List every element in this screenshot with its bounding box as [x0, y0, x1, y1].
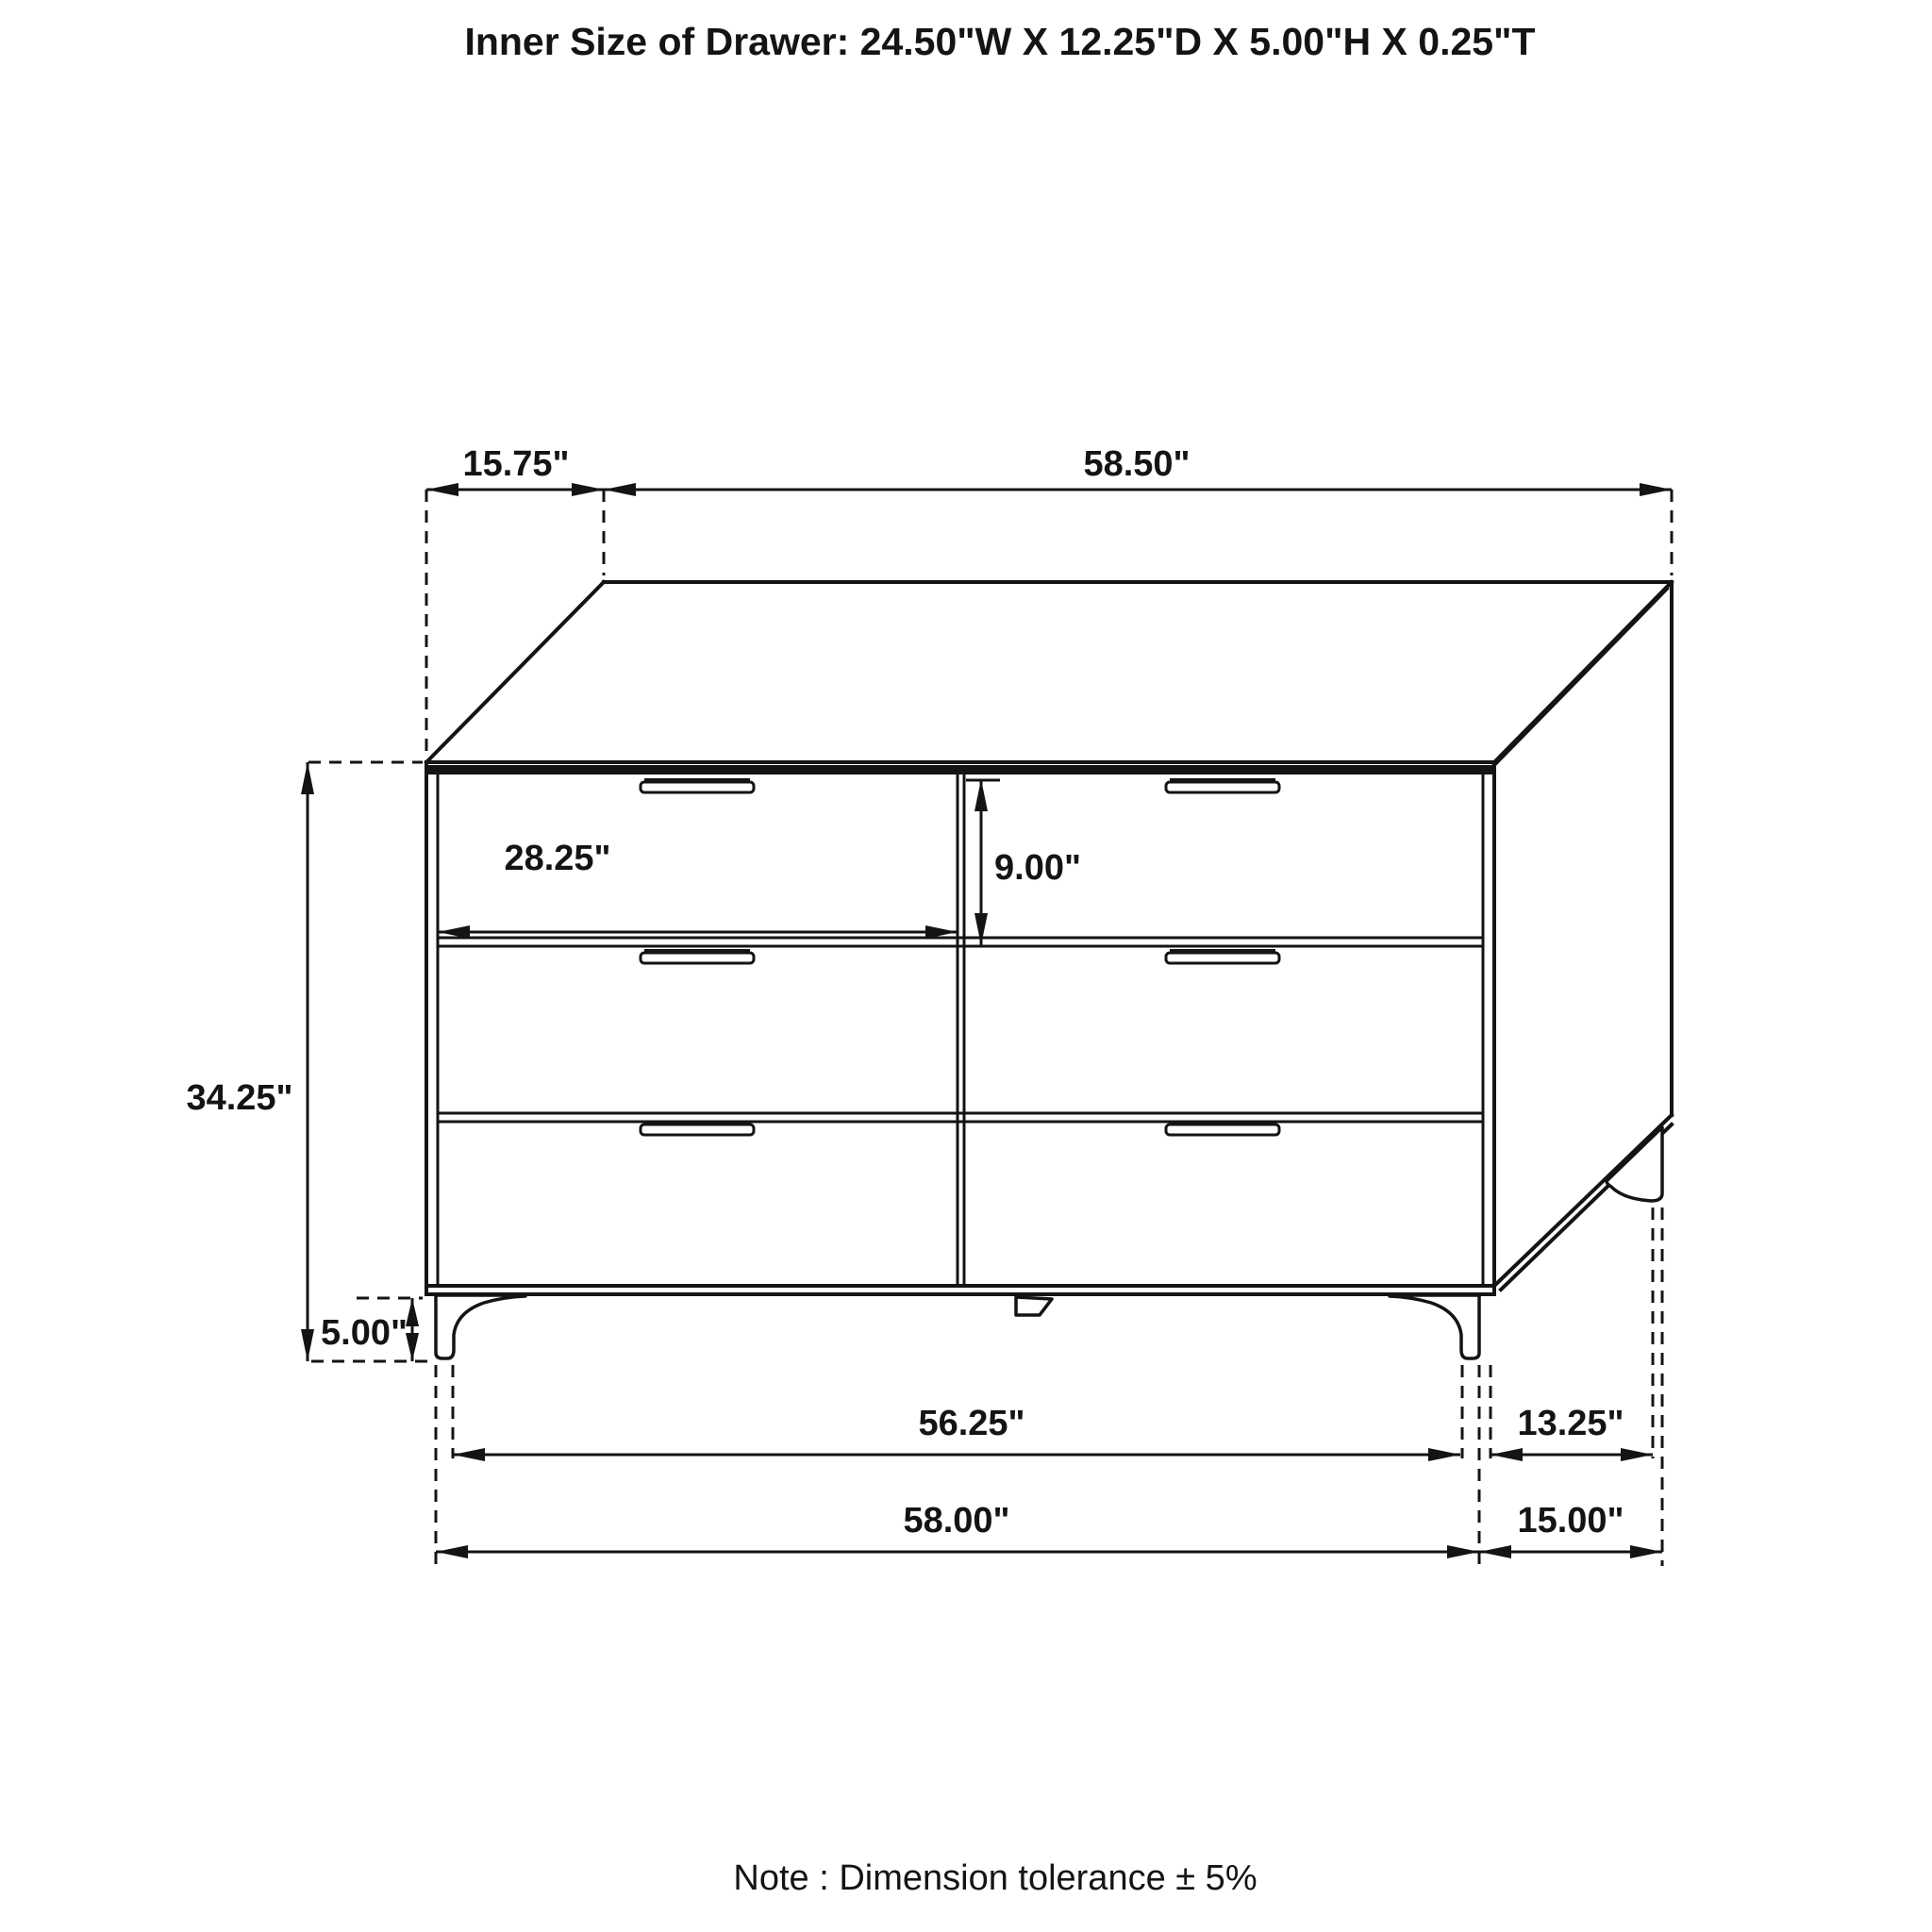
drawer-handle-icon — [641, 1121, 754, 1135]
drawer-handles — [641, 778, 1279, 1135]
left-front-foot — [436, 1295, 525, 1358]
page-title: Inner Size of Drawer: 24.50"W X 12.25"D … — [464, 20, 1535, 63]
dim-top-offset-label: 15.75" — [462, 444, 569, 484]
dim-height-label: 34.25" — [186, 1078, 292, 1118]
back-side-foot — [1607, 1127, 1662, 1201]
dimension-arrows — [301, 483, 1672, 1558]
dresser-dimension-diagram: Inner Size of Drawer: 24.50"W X 12.25"D … — [0, 0, 1932, 1932]
dim-side-depth-label: 15.00" — [1517, 1501, 1624, 1541]
drawer-handle-icon — [641, 949, 754, 963]
dim-overall-width-label: 58.00" — [903, 1501, 1009, 1541]
dimension-lines — [308, 490, 1672, 1552]
drawer-handle-icon — [1166, 949, 1279, 963]
drawer-handle-icon — [641, 778, 754, 792]
dim-drawer-height-label: 9.00" — [994, 848, 1081, 888]
dim-top-width-label: 58.50" — [1083, 444, 1190, 484]
dim-leg-height-label: 5.00" — [321, 1313, 408, 1353]
cabinet-feet — [436, 1127, 1662, 1358]
center-foot — [1016, 1297, 1052, 1315]
drawer-handle-icon — [1166, 1121, 1279, 1135]
dresser-dimension-page: Inner Size of Drawer: 24.50"W X 12.25"D … — [0, 0, 1932, 1932]
dim-feet-inner-width-label: 56.25" — [918, 1404, 1024, 1443]
top-edge-band — [426, 765, 1494, 774]
drawer-handle-icon — [1166, 778, 1279, 792]
tolerance-note: Note : Dimension tolerance ± 5% — [733, 1858, 1257, 1898]
right-front-foot — [1390, 1295, 1479, 1358]
dim-drawer-width-label: 28.25" — [504, 839, 610, 878]
dim-side-feet-offset-label: 13.25" — [1517, 1404, 1624, 1443]
cabinet-body — [426, 582, 1672, 1294]
